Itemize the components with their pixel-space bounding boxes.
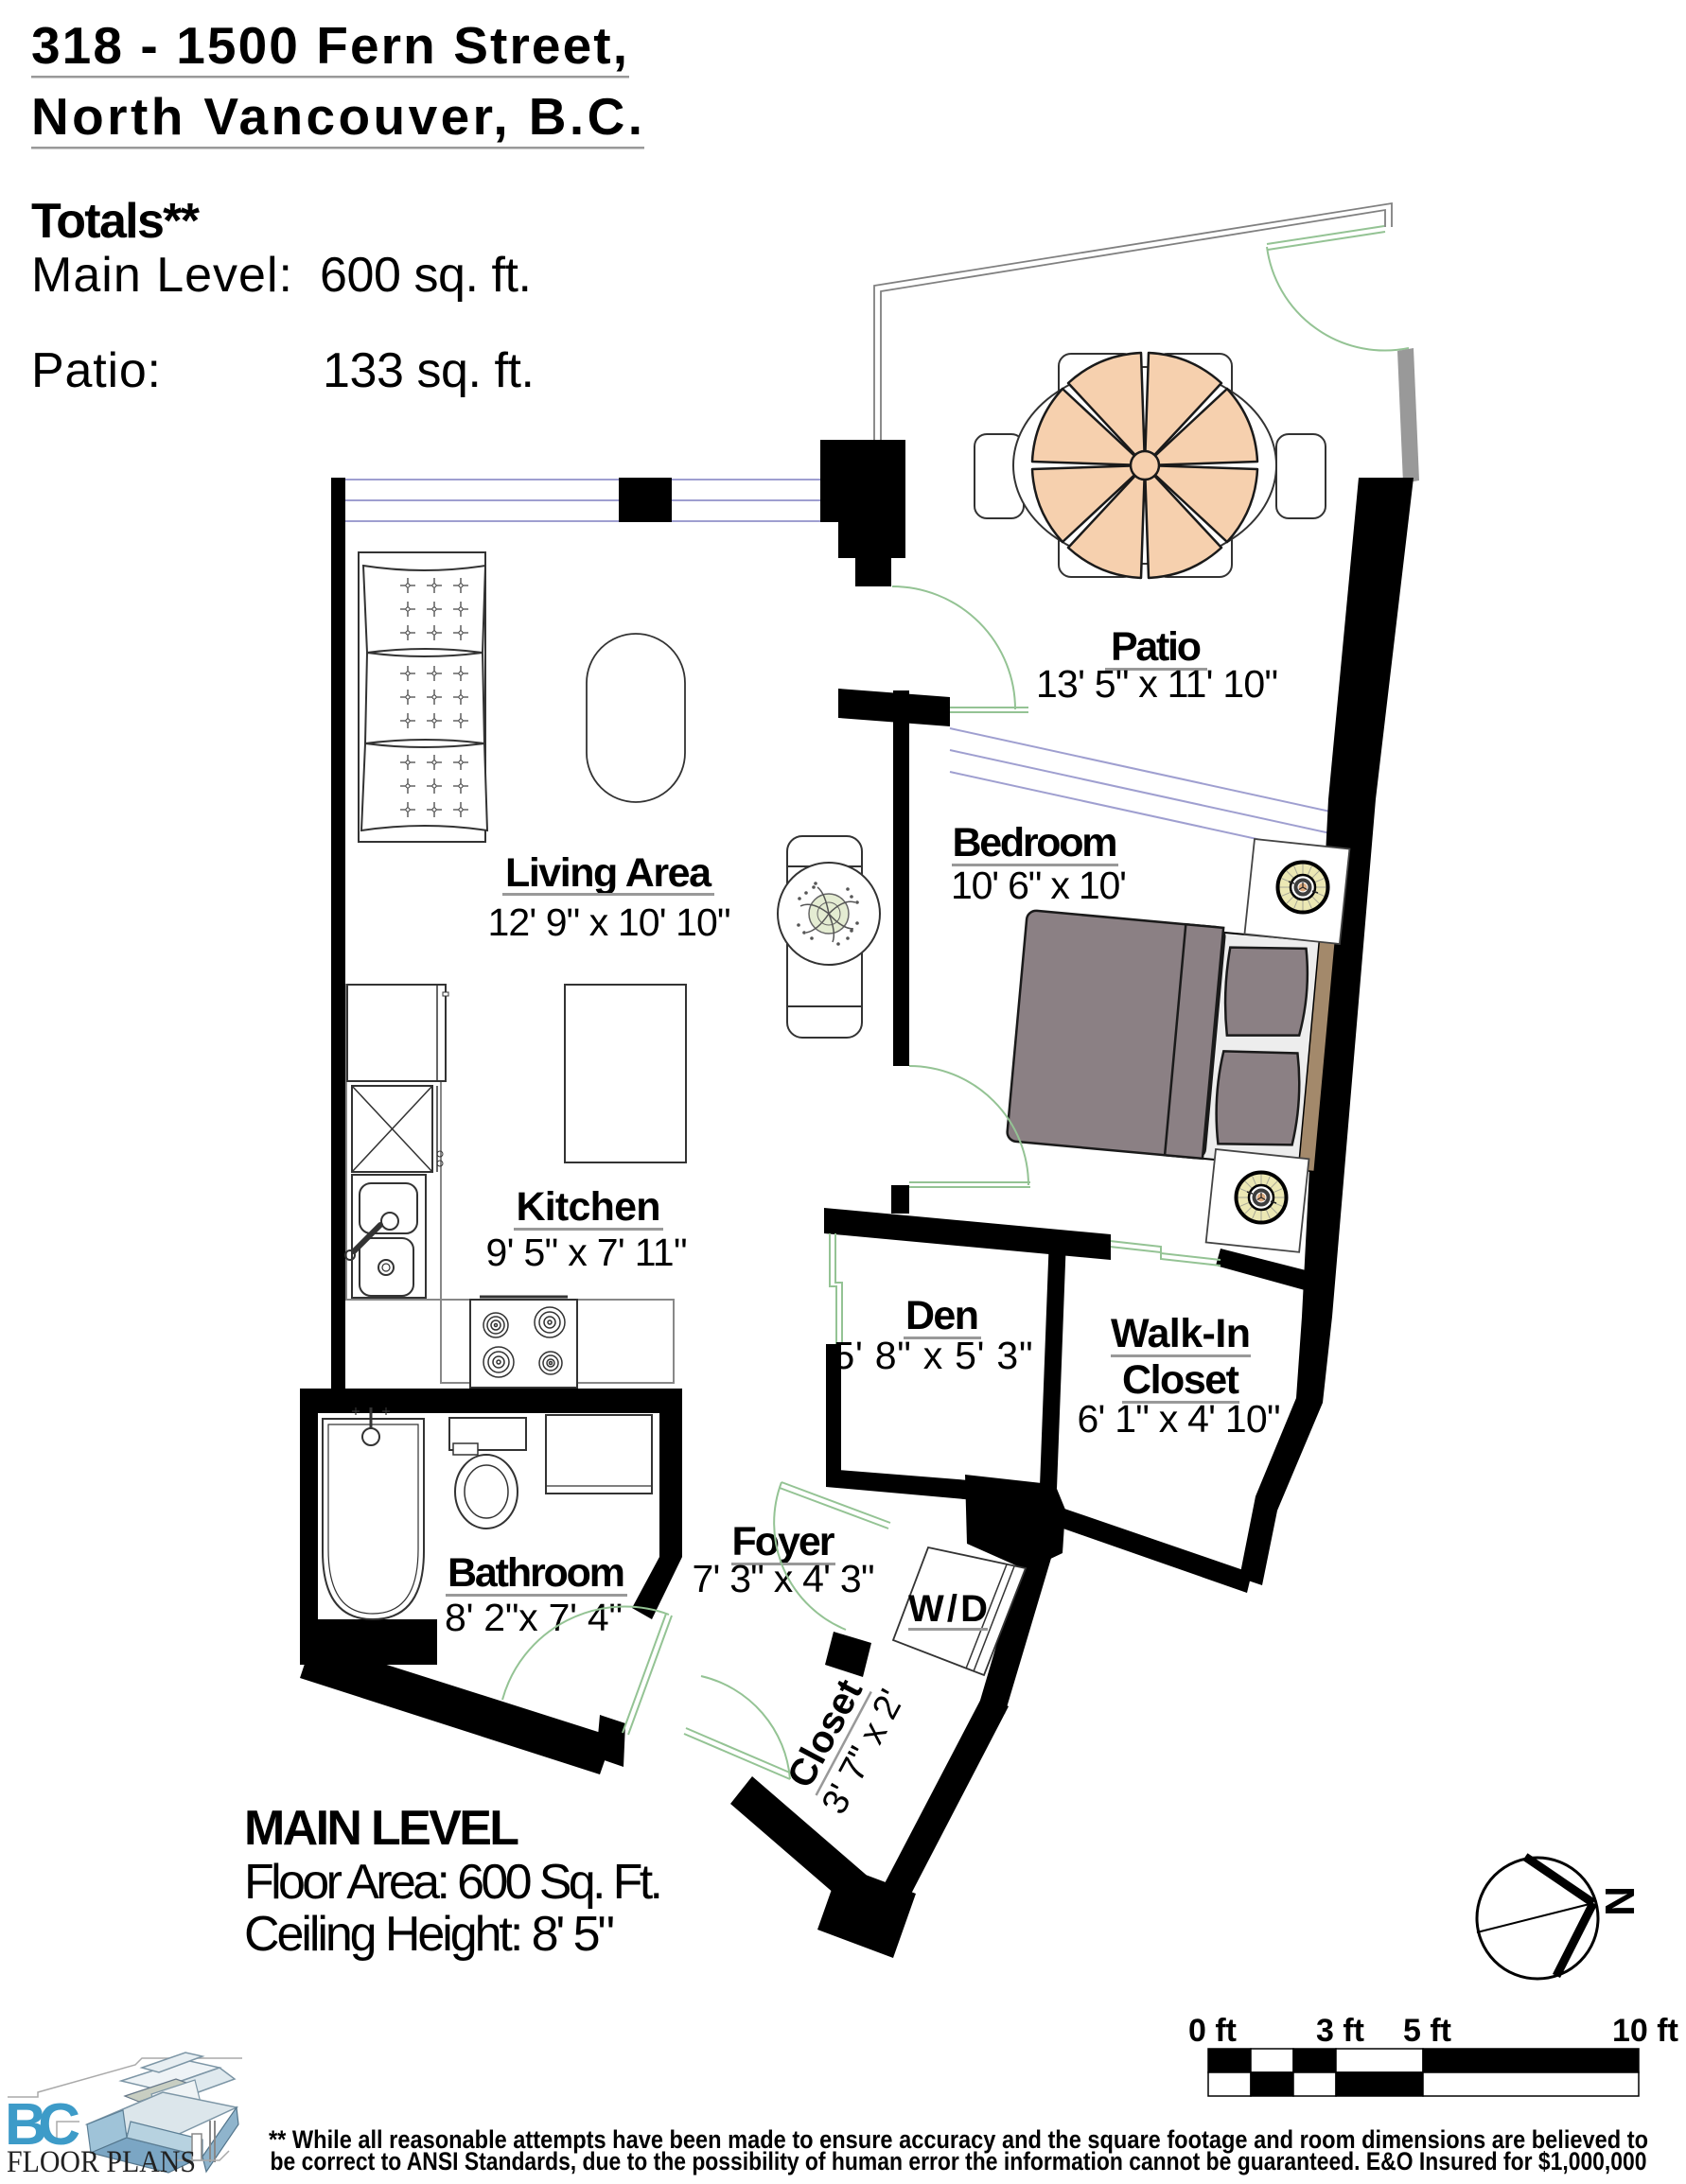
svg-text:Kitchen: Kitchen	[517, 1184, 661, 1230]
svg-text:10' 6" x 10': 10' 6" x 10'	[951, 864, 1127, 907]
svg-text:3 ft: 3 ft	[1316, 2013, 1364, 2049]
svg-text:Closet: Closet	[1122, 1357, 1239, 1403]
svg-text:318 - 1500 Fern Street,: 318 - 1500 Fern Street,	[31, 16, 627, 75]
svg-text:Patio:: Patio:	[31, 343, 161, 398]
svg-text:133 sq. ft.: 133 sq. ft.	[323, 343, 535, 398]
svg-text:9' 5" x 7' 11": 9' 5" x 7' 11"	[486, 1231, 688, 1274]
svg-text:be correct to ANSI Standards,: be correct to ANSI Standards, due to the…	[271, 2147, 1647, 2175]
svg-text:Living Area: Living Area	[505, 850, 712, 896]
svg-text:Floor Area: 600 Sq. Ft.: Floor Area: 600 Sq. Ft.	[244, 1855, 663, 1910]
svg-text:Den: Den	[905, 1293, 979, 1338]
svg-text:0 ft: 0 ft	[1188, 2013, 1237, 2049]
svg-text:12' 9" x 10' 10": 12' 9" x 10' 10"	[488, 900, 731, 944]
svg-text:Walk-In: Walk-In	[1111, 1311, 1251, 1356]
svg-text:FLOOR PLANS: FLOOR PLANS	[7, 2145, 196, 2179]
svg-text:MAIN LEVEL: MAIN LEVEL	[244, 1801, 519, 1856]
svg-text:10 ft: 10 ft	[1612, 2013, 1678, 2049]
svg-text:13' 5" x 11' 10": 13' 5" x 11' 10"	[1036, 662, 1278, 706]
svg-text:Main Level:: Main Level:	[31, 248, 292, 303]
svg-text:Ceiling Height: 8' 5": Ceiling Height: 8' 5"	[244, 1907, 615, 1962]
svg-text:600 sq. ft.: 600 sq. ft.	[320, 248, 532, 303]
svg-text:Totals**: Totals**	[31, 194, 201, 249]
svg-text:8' 2"x 7' 4": 8' 2"x 7' 4"	[445, 1596, 623, 1639]
svg-text:6' 1" x 4' 10": 6' 1" x 4' 10"	[1078, 1397, 1281, 1441]
svg-text:Bedroom: Bedroom	[953, 820, 1118, 865]
svg-text:7' 3" x 4' 3": 7' 3" x 4' 3"	[693, 1557, 875, 1600]
svg-text:5' 8" x 5' 3": 5' 8" x 5' 3"	[834, 1334, 1033, 1377]
svg-text:N: N	[1596, 1886, 1642, 1916]
svg-text:5 ft: 5 ft	[1403, 2013, 1451, 2049]
svg-text:Bathroom: Bathroom	[448, 1550, 625, 1596]
svg-text:W/D: W/D	[908, 1588, 988, 1630]
